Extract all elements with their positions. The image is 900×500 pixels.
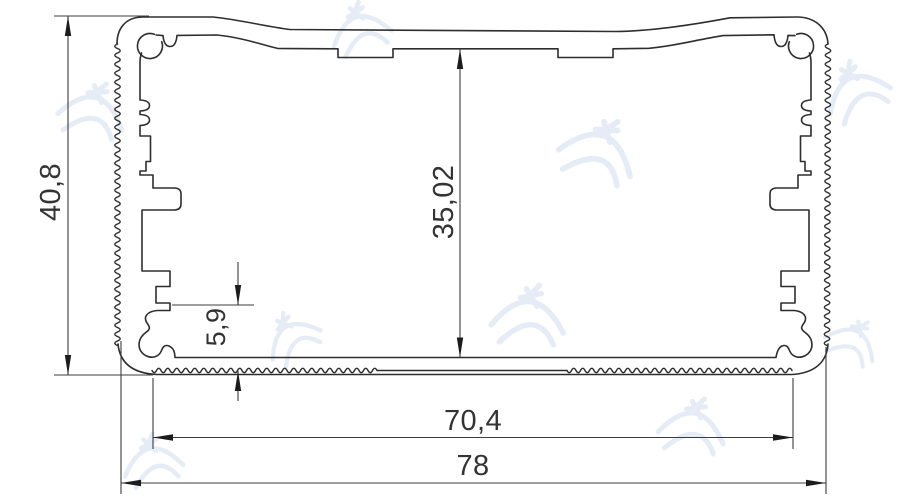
- technical-drawing-canvas: 40,8 35,02 5,9 70,4 78: [0, 0, 900, 500]
- dimension-arrowhead: [457, 49, 463, 69]
- dimension-arrowhead: [65, 355, 71, 375]
- dimension-arrowhead: [65, 16, 71, 36]
- right-fin-serration: [824, 44, 830, 346]
- floor-serration-right: [567, 368, 792, 372]
- left-fin-serration: [115, 44, 120, 346]
- profile-inner-outline: [137, 34, 813, 373]
- dim-label-slot-height: 5,9: [201, 308, 231, 347]
- outer-top-surface: [117, 17, 828, 44]
- dimension-arrowhead: [235, 285, 241, 305]
- dimension-arrowhead: [121, 480, 141, 486]
- dim-label-inner-width: 70,4: [444, 405, 502, 437]
- dimension-arrowhead: [806, 480, 826, 486]
- dim-label-inner-height: 35,02: [428, 165, 460, 240]
- profile-drawing: 40,8 35,02 5,9 70,4 78: [0, 0, 900, 500]
- dimension-inner-height: 35,02: [428, 49, 463, 358]
- dimension-overall-height: 40,8: [35, 16, 153, 375]
- dimension-arrowhead: [773, 434, 793, 440]
- cavity-walls-and-floor: [139, 53, 812, 358]
- cavity-ceiling: [156, 35, 795, 58]
- floor-serration-left: [152, 368, 377, 372]
- dimension-slot-height: 5,9: [172, 262, 254, 401]
- dim-label-overall-height: 40,8: [35, 163, 67, 221]
- dim-label-overall-width: 78: [456, 450, 489, 482]
- dimension-arrowhead: [457, 338, 463, 358]
